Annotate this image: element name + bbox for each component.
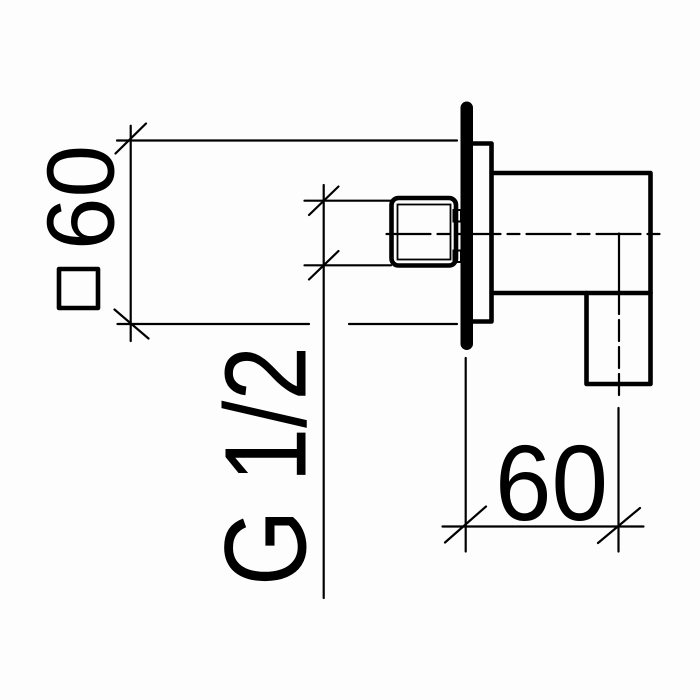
flange-outline [473,144,492,322]
thread-dim-value: G 1/2 [201,346,331,586]
technical-drawing: 60 G 1/2 60 [0,0,700,700]
outlet-dim-value: 60 [495,422,608,543]
dimension-thread: G 1/2 [201,185,392,598]
wall-plate-edge [461,102,474,351]
valve-body-outline [493,173,651,384]
fixture-side-view [387,102,665,398]
drawing-canvas: 60 G 1/2 60 [0,0,700,700]
thread-nipple-inner [398,205,451,260]
dimension-outlet-offset: 60 [443,358,644,552]
square-symbol [59,269,98,308]
thread-nipple-outline [392,198,457,266]
plate-dim-value: 60 [28,145,135,250]
